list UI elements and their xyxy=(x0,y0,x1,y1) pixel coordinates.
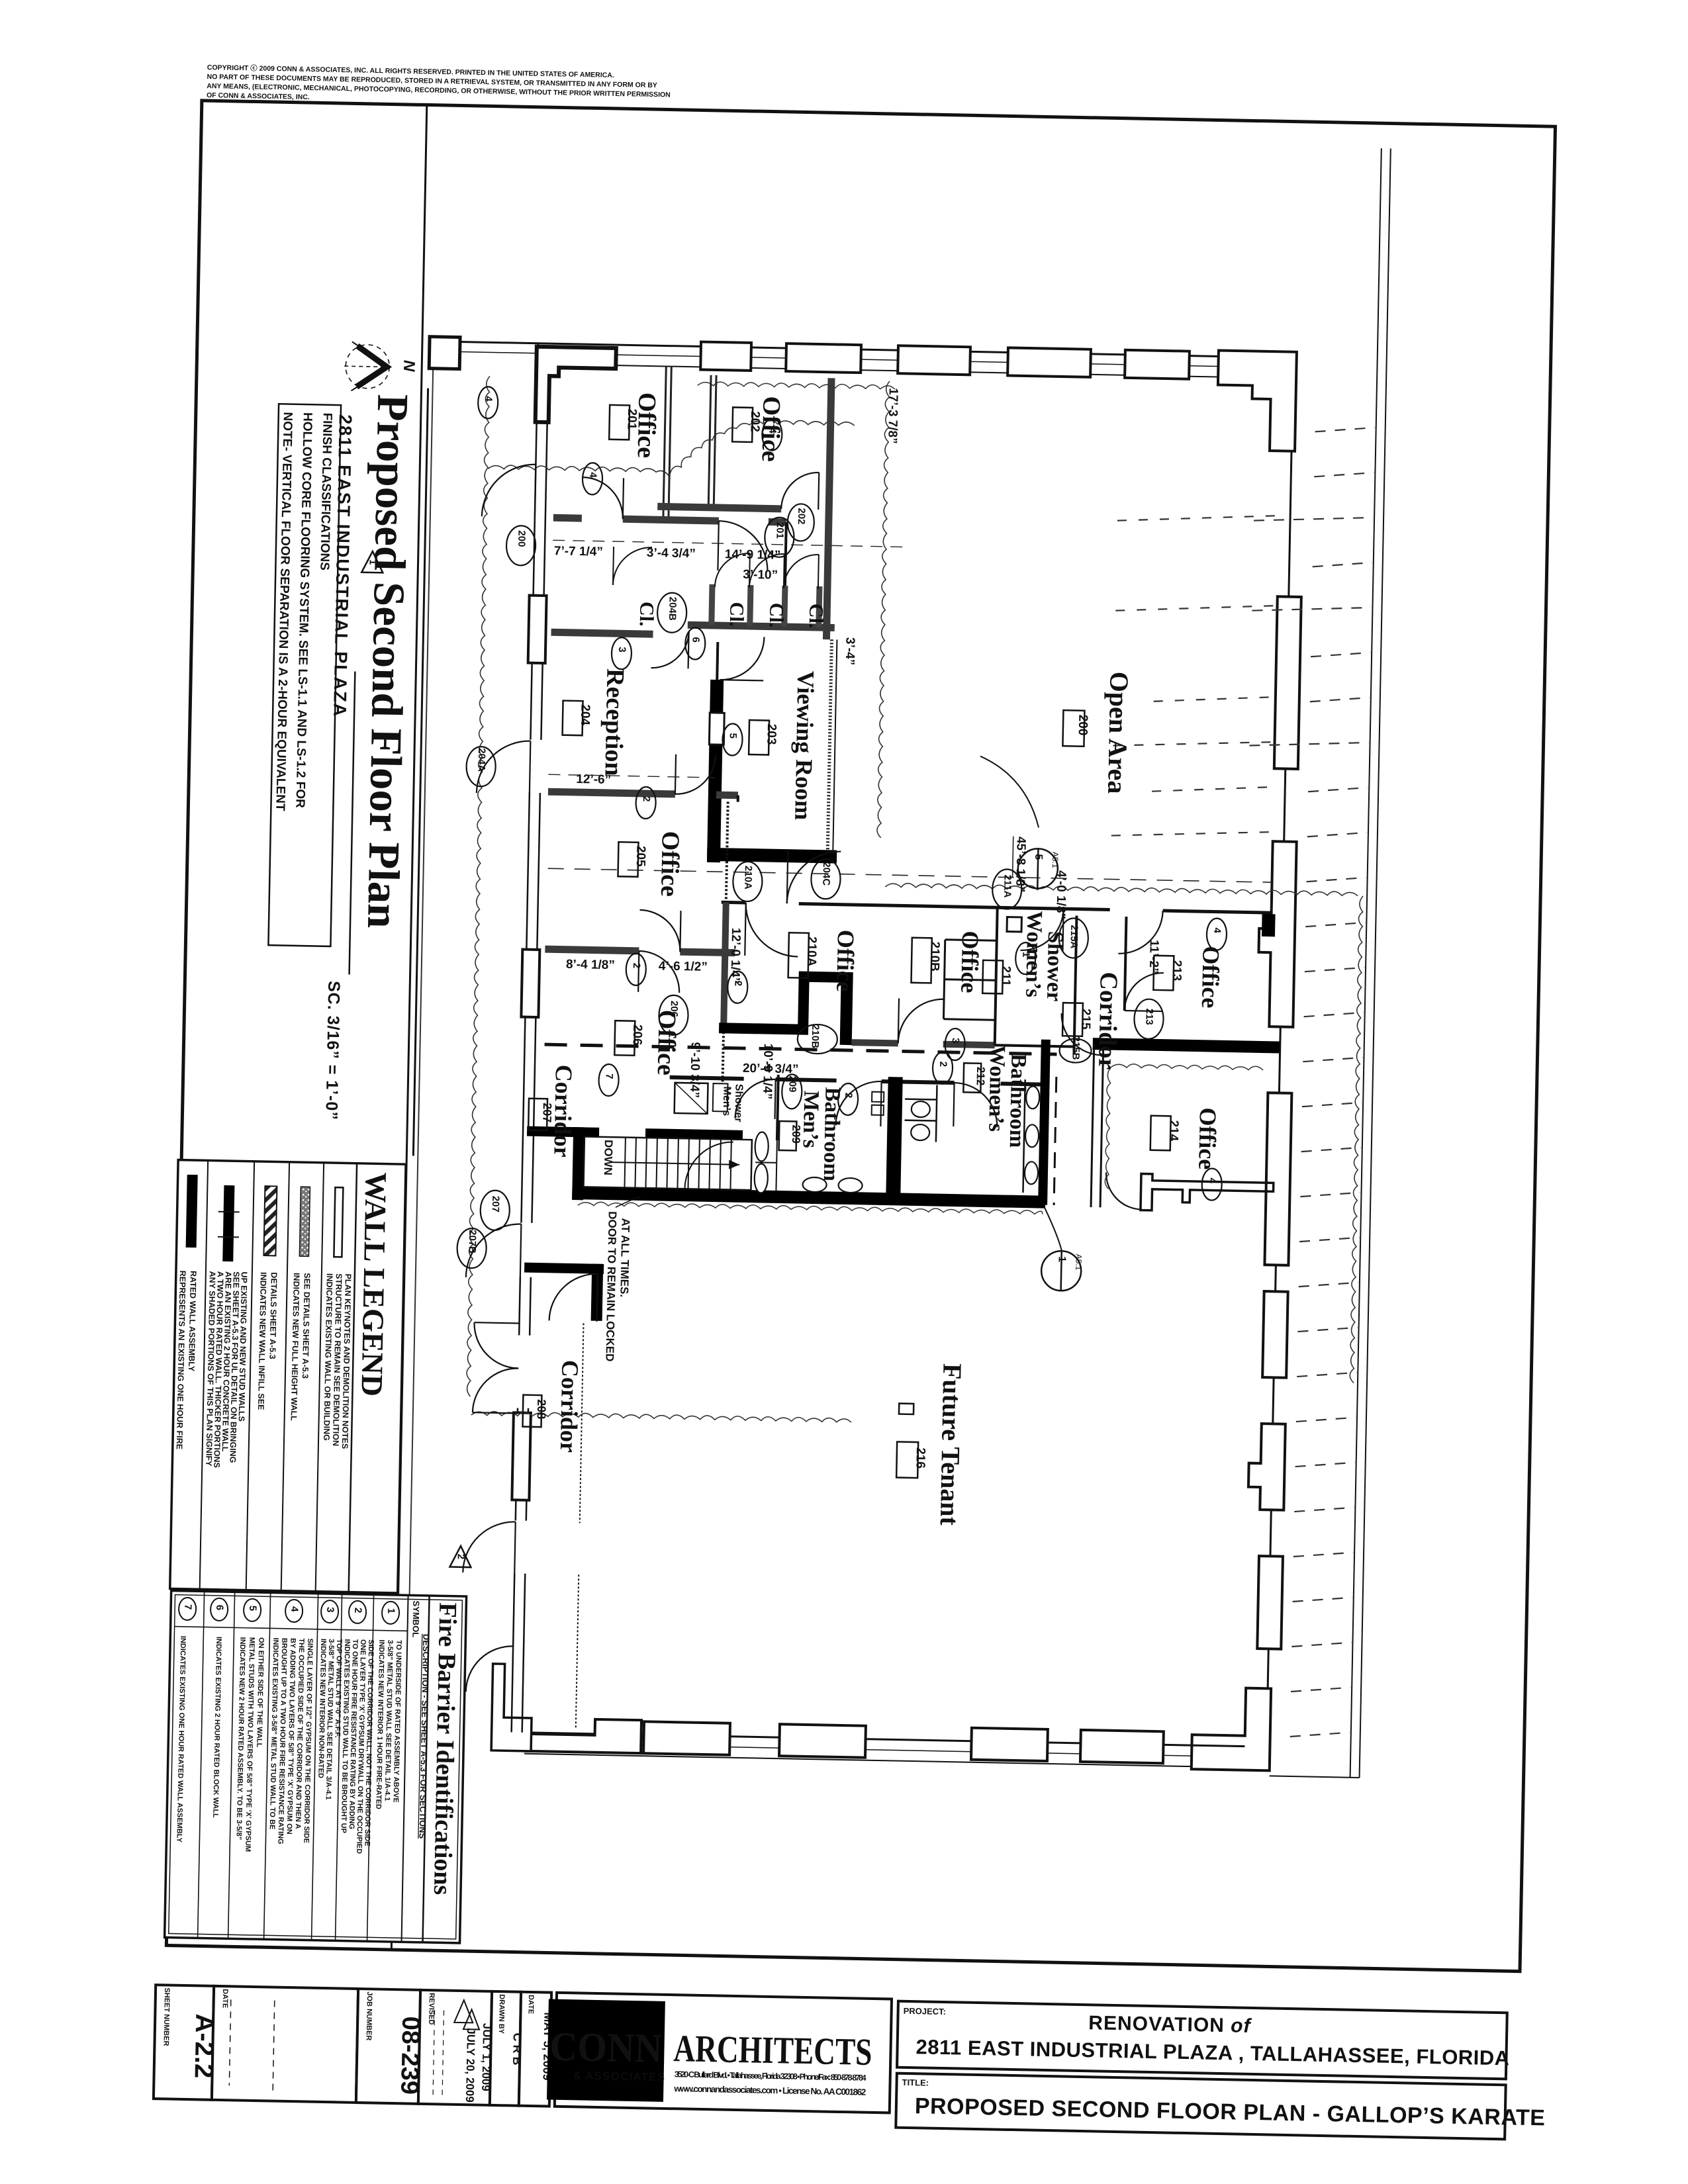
svg-text:215A: 215A xyxy=(1068,925,1080,948)
svg-text:DOOR TO REMAIN LOCKED: DOOR TO REMAIN LOCKED xyxy=(603,1211,618,1362)
svg-text:11’-2”: 11’-2” xyxy=(1147,940,1161,974)
svg-text:210A: 210A xyxy=(804,936,819,967)
svg-text:5: 5 xyxy=(727,733,739,739)
svg-text:NOTE- VERTICAL FLOOR SEPARATIO: NOTE- VERTICAL FLOOR SEPARATION IS A 2-H… xyxy=(273,412,295,811)
svg-text:213: 213 xyxy=(1170,960,1184,981)
svg-text:211A: 211A xyxy=(1002,874,1013,898)
svg-text:215B: 215B xyxy=(1070,1036,1082,1060)
svg-text:6: 6 xyxy=(690,637,701,643)
svg-text:4: 4 xyxy=(587,472,598,478)
svg-text:SYMBOL: SYMBOL xyxy=(410,1600,421,1637)
svg-text:200: 200 xyxy=(1076,714,1090,735)
svg-text:2: 2 xyxy=(843,1093,854,1099)
svg-text:216: 216 xyxy=(913,1447,927,1469)
svg-text:Open Area: Open Area xyxy=(1102,671,1135,794)
svg-text:200: 200 xyxy=(516,530,527,547)
svg-text:JULY 20, 2009: JULY 20, 2009 xyxy=(463,2028,477,2103)
svg-text:& ASSOCIATES: & ASSOCIATES xyxy=(574,2070,667,2083)
svg-text:1: 1 xyxy=(367,559,378,565)
svg-text:212: 212 xyxy=(974,1067,988,1086)
svg-text:Bathroom: Bathroom xyxy=(819,1087,845,1181)
svg-text:209: 209 xyxy=(786,1075,798,1092)
svg-text:4: 4 xyxy=(1207,1177,1218,1183)
svg-text:WALL LEGEND: WALL LEGEND xyxy=(355,1172,393,1397)
svg-text:FINISH CLASSIFICATIONS: FINISH CLASSIFICATIONS xyxy=(317,412,334,570)
svg-text:3: 3 xyxy=(950,1038,961,1044)
svg-text:206: 206 xyxy=(668,1001,679,1017)
svg-text:Cl.: Cl. xyxy=(726,602,748,627)
svg-text:2: 2 xyxy=(455,1554,467,1560)
svg-text:203: 203 xyxy=(764,723,778,745)
svg-text:Fire Barrier Identifications: Fire Barrier Identifications xyxy=(428,1602,461,1895)
svg-text:DATE: DATE xyxy=(526,1995,535,2014)
svg-text:Proposed Second Floor Plan: Proposed Second Floor Plan xyxy=(358,394,417,929)
svg-text:207: 207 xyxy=(490,1196,501,1212)
svg-text:4: 4 xyxy=(483,396,494,402)
svg-text:7: 7 xyxy=(604,1073,615,1079)
svg-text:3’-4”: 3’-4” xyxy=(843,637,857,666)
svg-text:12’-0 1/4”: 12’-0 1/4” xyxy=(727,927,743,983)
svg-text:6: 6 xyxy=(214,1605,225,1611)
svg-text:Cl.: Cl. xyxy=(635,602,658,627)
svg-text:201: 201 xyxy=(624,408,639,430)
svg-text:215: 215 xyxy=(1078,1009,1093,1030)
svg-text:4: 4 xyxy=(289,1606,300,1612)
svg-text:N: N xyxy=(400,360,418,373)
svg-text:Office: Office xyxy=(831,929,859,992)
svg-text:202: 202 xyxy=(796,508,807,524)
svg-text:DOWN: DOWN xyxy=(602,1140,615,1175)
svg-text:209: 209 xyxy=(790,1124,803,1144)
svg-text:2: 2 xyxy=(352,1608,363,1614)
svg-text:12’-6”: 12’-6” xyxy=(576,772,611,787)
svg-text:JOB NUMBER: JOB NUMBER xyxy=(365,1991,373,2040)
svg-text:204C: 204C xyxy=(820,862,832,886)
svg-text:DETAILS SHEET A-5.3: DETAILS SHEET A-5.3 xyxy=(267,1272,279,1359)
svg-text:17’-3 7/8”: 17’-3 7/8” xyxy=(885,388,900,444)
svg-text:Cl.: Cl. xyxy=(805,604,827,629)
svg-text:Reception: Reception xyxy=(599,668,629,776)
svg-text:1: 1 xyxy=(385,1608,397,1614)
svg-text:Corridor: Corridor xyxy=(1093,972,1123,1070)
svg-text:208: 208 xyxy=(535,1399,549,1419)
svg-text:Office: Office xyxy=(652,1009,681,1075)
svg-text:2: 2 xyxy=(732,981,743,987)
svg-text:5: 5 xyxy=(247,1606,258,1612)
svg-text:1: 1 xyxy=(1056,1256,1067,1262)
svg-text:4: 4 xyxy=(1211,927,1223,933)
svg-text:Future Tenant: Future Tenant xyxy=(935,1363,968,1526)
svg-text:DRAWN BY: DRAWN BY xyxy=(497,1994,506,2034)
svg-text:3’-4 3/4”: 3’-4 3/4” xyxy=(647,546,696,561)
svg-text:201: 201 xyxy=(774,522,785,539)
svg-text:213: 213 xyxy=(1143,1009,1154,1025)
svg-text:2: 2 xyxy=(937,1062,949,1068)
svg-text:Office: Office xyxy=(956,931,984,993)
svg-text:4’-6 1/2”: 4’-6 1/2” xyxy=(659,959,708,974)
svg-text:214: 214 xyxy=(1166,1120,1181,1142)
svg-text:211: 211 xyxy=(998,966,1013,986)
svg-text:210B: 210B xyxy=(810,1024,821,1048)
svg-text:Office: Office xyxy=(655,831,684,897)
svg-text:Shower: Shower xyxy=(1042,931,1067,1002)
svg-text:204B: 204B xyxy=(667,597,679,621)
svg-text:207B: 207B xyxy=(467,1230,479,1253)
svg-text:Cl.: Cl. xyxy=(765,602,788,627)
svg-text:RENOVATION of: RENOVATION of xyxy=(1088,2012,1252,2037)
svg-text:4: 4 xyxy=(767,428,778,433)
svg-text:207: 207 xyxy=(540,1103,554,1122)
svg-text:A5.1: A5.1 xyxy=(1051,852,1060,868)
svg-text:210B: 210B xyxy=(927,941,942,972)
svg-text:205: 205 xyxy=(633,846,648,868)
svg-text:Men’s: Men’s xyxy=(721,1086,733,1116)
svg-text:TITLE:: TITLE: xyxy=(902,2077,929,2088)
svg-text:204A: 204A xyxy=(475,748,487,772)
svg-text:Viewing Room: Viewing Room xyxy=(790,670,819,820)
svg-text:2: 2 xyxy=(641,796,652,802)
svg-text:A5.1: A5.1 xyxy=(1074,1254,1083,1271)
svg-text:7’-7 1/4”: 7’-7 1/4” xyxy=(554,544,603,559)
svg-text:PROJECT:: PROJECT: xyxy=(904,2006,947,2017)
svg-text:Bathroom: Bathroom xyxy=(1005,1054,1031,1148)
svg-text:HOLLOW CORE FLOORING SYSTEM. S: HOLLOW CORE FLOORING SYSTEM. SEE LS-1.1 … xyxy=(293,412,314,808)
svg-text:3: 3 xyxy=(616,647,628,653)
svg-text:RATED WALL ASSEMBLY: RATED WALL ASSEMBLY xyxy=(187,1271,198,1372)
svg-text:CONN: CONN xyxy=(549,2025,663,2071)
svg-text:Shower: Shower xyxy=(732,1084,744,1122)
svg-text:Office: Office xyxy=(1194,1107,1221,1170)
svg-text:9’-10 3/4”: 9’-10 3/4” xyxy=(687,1042,702,1098)
svg-text:Corridor: Corridor xyxy=(555,1360,584,1453)
svg-text:204: 204 xyxy=(578,704,592,726)
svg-text:210A: 210A xyxy=(742,866,754,889)
svg-text:8’-4 1/8”: 8’-4 1/8” xyxy=(566,958,615,972)
svg-text:1: 1 xyxy=(1020,952,1031,958)
svg-text:5: 5 xyxy=(1033,854,1044,860)
svg-text:7: 7 xyxy=(182,1604,193,1610)
svg-text:SC. 3/16” = 1’-0”: SC. 3/16” = 1’-0” xyxy=(322,981,343,1120)
svg-text:2: 2 xyxy=(631,963,642,969)
svg-text:202: 202 xyxy=(747,411,762,432)
svg-text:DATE: DATE xyxy=(221,1989,230,2008)
svg-text:Office: Office xyxy=(1197,946,1225,1009)
svg-text:SHEET NUMBER: SHEET NUMBER xyxy=(162,1987,171,2046)
svg-text:206: 206 xyxy=(630,1024,645,1046)
svg-text:AT ALL TIMES.: AT ALL TIMES. xyxy=(618,1218,632,1297)
svg-text:3’-10”: 3’-10” xyxy=(743,568,778,582)
svg-text:ARCHITECTS: ARCHITECTS xyxy=(673,2026,872,2073)
svg-text:3: 3 xyxy=(324,1607,336,1613)
